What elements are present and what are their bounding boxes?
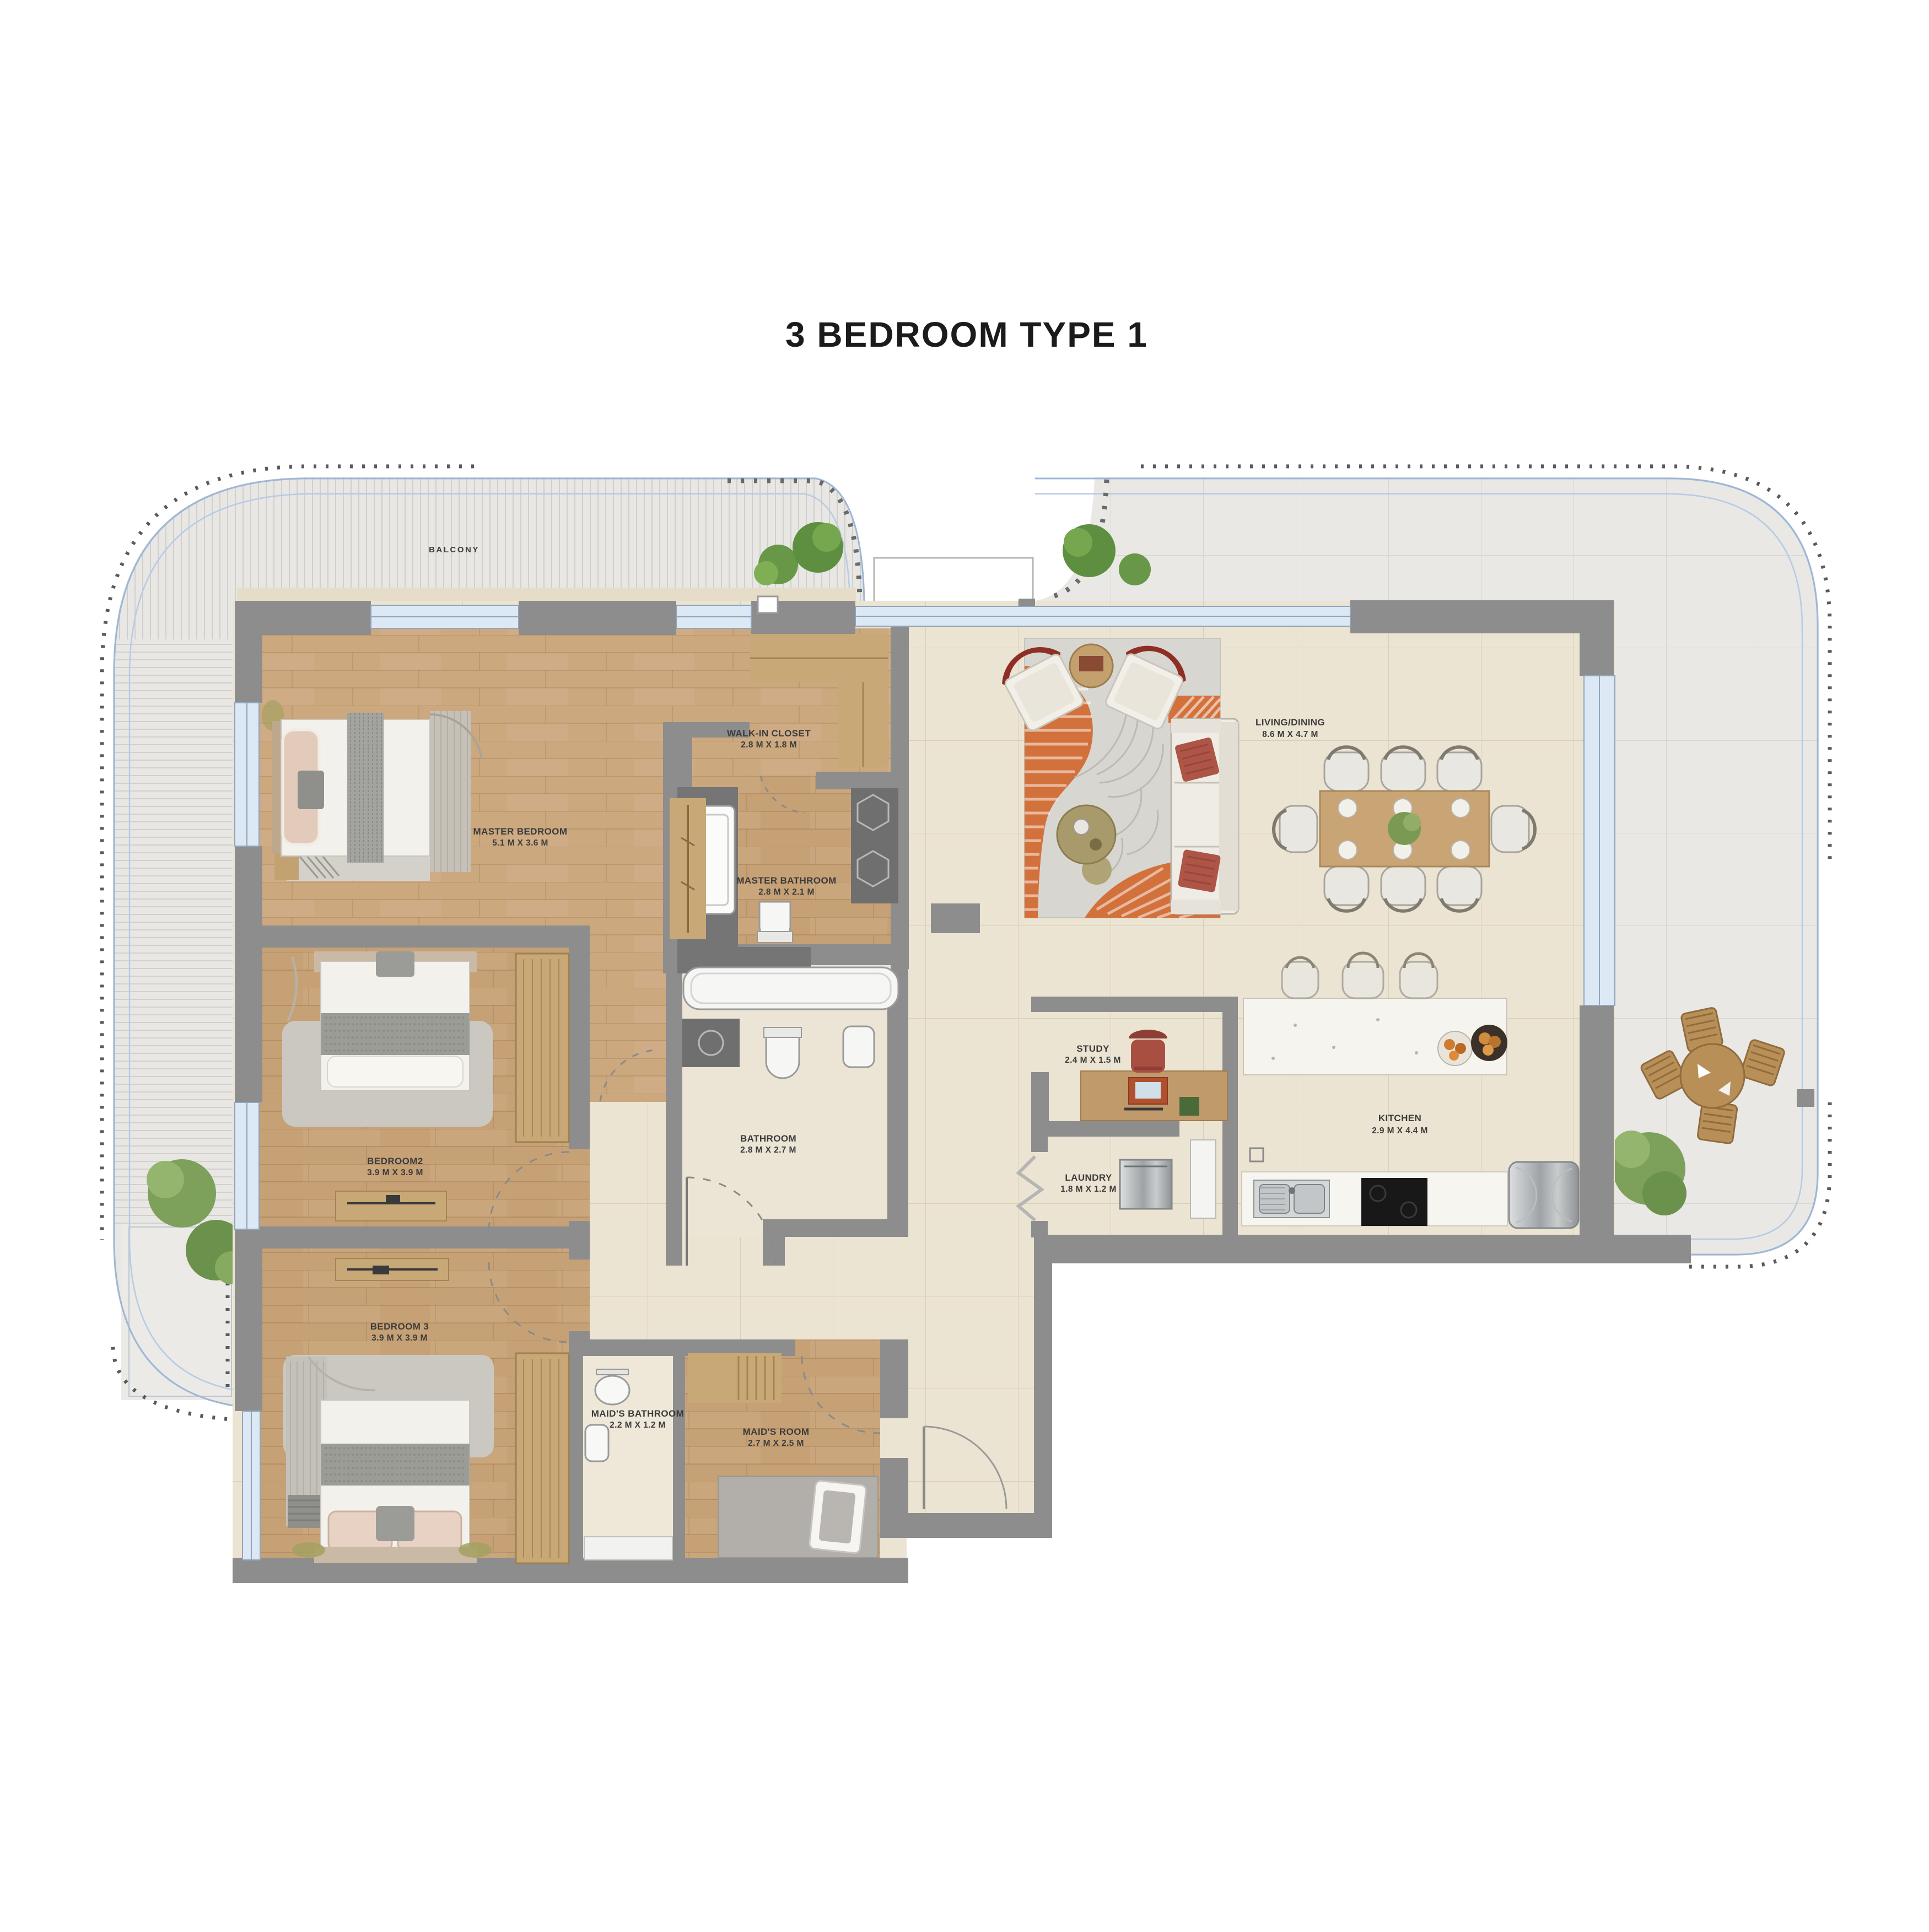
- svg-text:3 BEDROOM TYPE 1: 3 BEDROOM TYPE 1: [785, 315, 1148, 354]
- svg-text:5.1 M X 3.6 M: 5.1 M X 3.6 M: [492, 838, 548, 848]
- svg-text:LAUNDRY: LAUNDRY: [1065, 1172, 1112, 1183]
- svg-text:STUDY: STUDY: [1076, 1043, 1109, 1054]
- svg-text:2.8 M X 2.7 M: 2.8 M X 2.7 M: [740, 1145, 796, 1155]
- svg-text:BEDROOM 3: BEDROOM 3: [370, 1321, 429, 1332]
- svg-text:2.4 M X 1.5 M: 2.4 M X 1.5 M: [1065, 1056, 1121, 1065]
- svg-text:8.6 M X 4.7 M: 8.6 M X 4.7 M: [1262, 730, 1318, 739]
- svg-text:MAID'S ROOM: MAID'S ROOM: [743, 1427, 810, 1437]
- svg-text:2.2 M X 1.2 M: 2.2 M X 1.2 M: [610, 1420, 666, 1430]
- svg-text:2.8 M X 2.1 M: 2.8 M X 2.1 M: [758, 887, 815, 897]
- svg-text:2.8 M X 1.8 M: 2.8 M X 1.8 M: [741, 740, 797, 750]
- svg-text:WALK-IN CLOSET: WALK-IN CLOSET: [727, 728, 811, 739]
- svg-text:2.7 M X 2.5 M: 2.7 M X 2.5 M: [748, 1439, 804, 1448]
- svg-text:KITCHEN: KITCHEN: [1378, 1113, 1421, 1123]
- svg-text:1.8 M X 1.2 M: 1.8 M X 1.2 M: [1060, 1185, 1117, 1194]
- svg-text:MAID'S BATHROOM: MAID'S BATHROOM: [591, 1408, 684, 1419]
- svg-text:BEDROOM2: BEDROOM2: [367, 1156, 423, 1166]
- svg-text:2.9 M X 4.4 M: 2.9 M X 4.4 M: [1372, 1126, 1428, 1135]
- svg-text:LIVING/DINING: LIVING/DINING: [1256, 717, 1325, 728]
- svg-text:3.9 M X 3.9 M: 3.9 M X 3.9 M: [367, 1168, 423, 1177]
- svg-text:BALCONY: BALCONY: [429, 545, 479, 555]
- svg-text:3.9 M X 3.9 M: 3.9 M X 3.9 M: [371, 1333, 428, 1343]
- svg-text:BATHROOM: BATHROOM: [740, 1133, 796, 1144]
- svg-text:MASTER BEDROOM: MASTER BEDROOM: [473, 826, 568, 837]
- svg-text:MASTER BATHROOM: MASTER BATHROOM: [736, 875, 836, 886]
